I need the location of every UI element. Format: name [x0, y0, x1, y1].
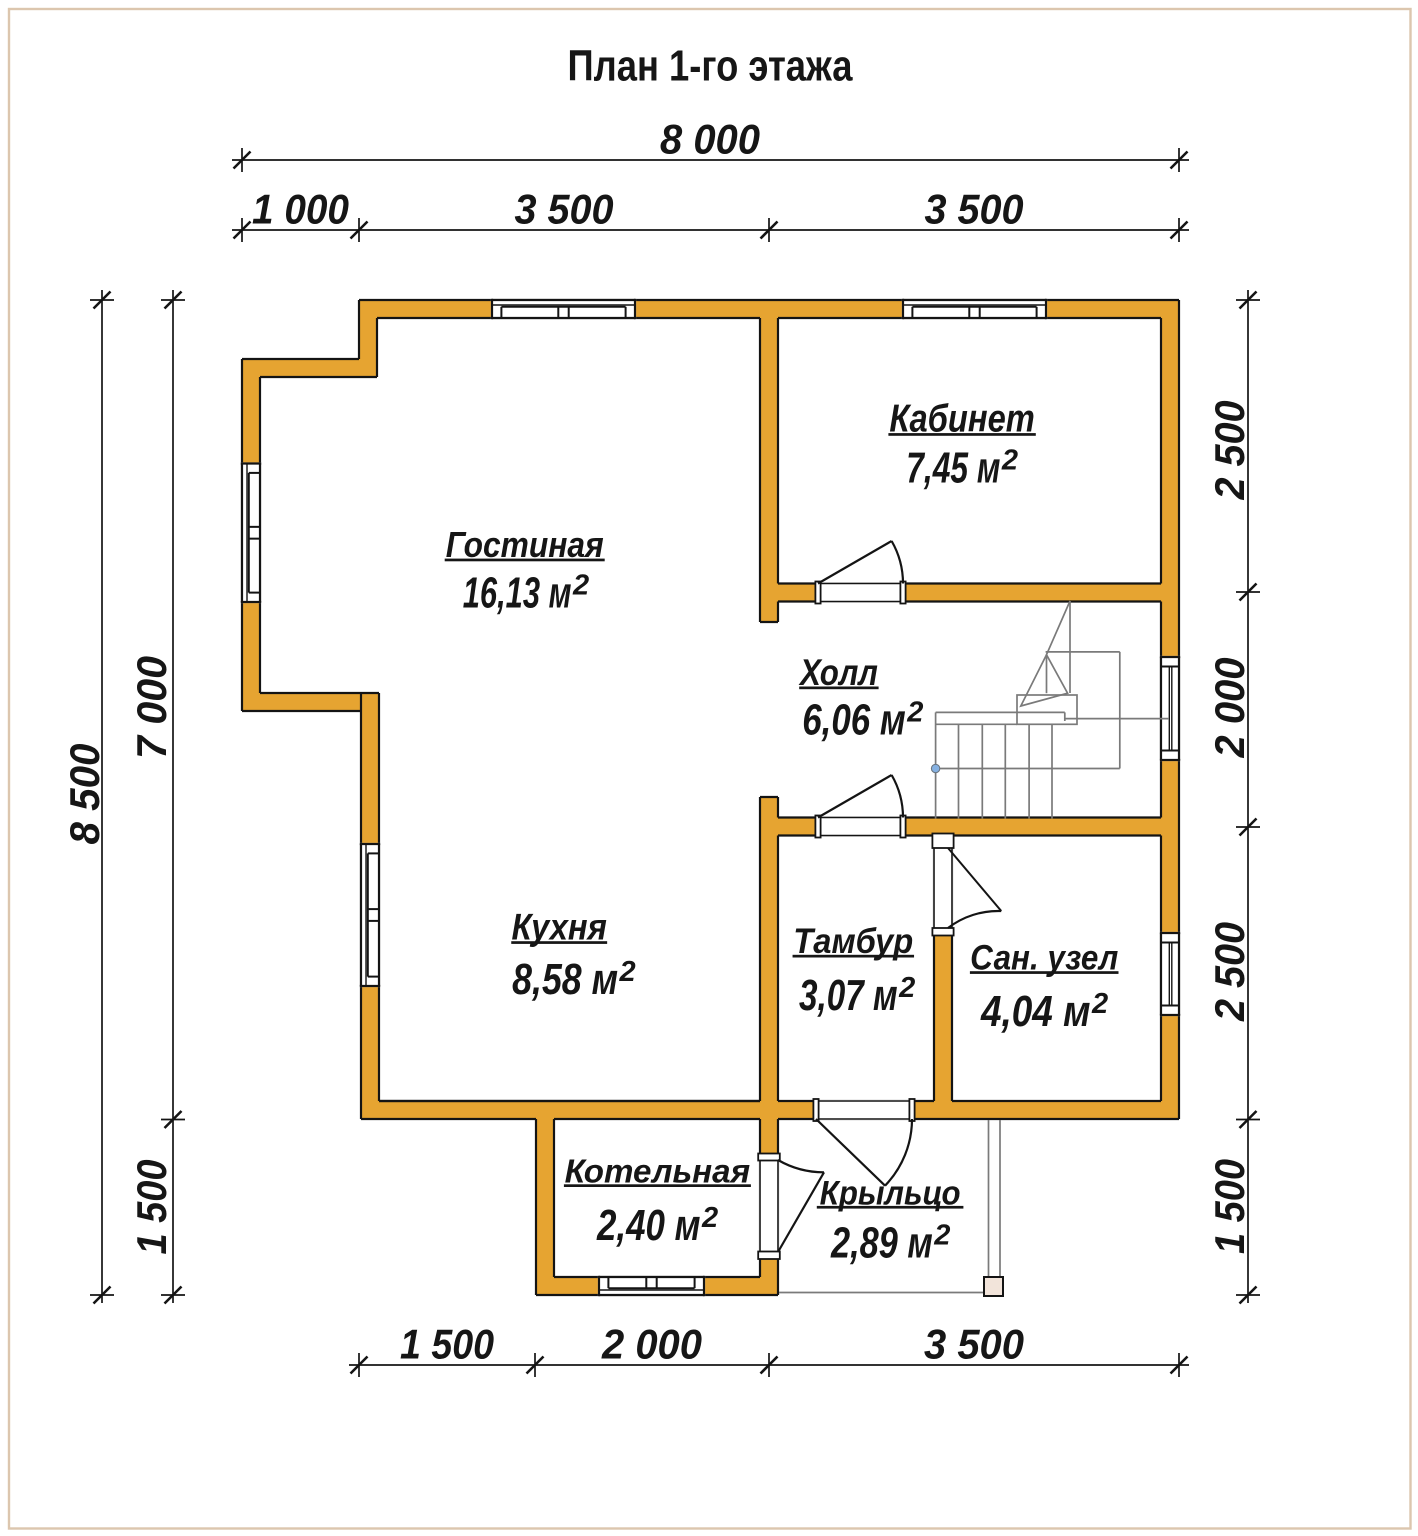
svg-text:3,07 м: 3,07 м: [799, 972, 898, 1020]
svg-text:2: 2: [898, 972, 915, 1004]
svg-text:1 500: 1 500: [400, 1321, 494, 1368]
svg-text:2: 2: [1091, 988, 1108, 1020]
svg-text:7,45 м: 7,45 м: [906, 444, 1000, 492]
svg-text:2: 2: [572, 570, 589, 602]
svg-text:2 500: 2 500: [1206, 401, 1253, 501]
svg-text:1 000: 1 000: [252, 186, 349, 233]
svg-text:Котельная: Котельная: [565, 1153, 750, 1190]
svg-text:8 000: 8 000: [660, 116, 760, 163]
svg-text:2: 2: [701, 1202, 718, 1234]
svg-text:2: 2: [1001, 444, 1018, 476]
svg-text:4,04 м: 4,04 м: [980, 988, 1090, 1036]
svg-text:2 000: 2 000: [601, 1321, 702, 1368]
svg-text:3 500: 3 500: [924, 1321, 1024, 1368]
svg-text:2: 2: [619, 956, 636, 988]
svg-text:16,13 м: 16,13 м: [463, 570, 572, 618]
svg-text:1 500: 1 500: [128, 1160, 175, 1255]
svg-text:2: 2: [906, 697, 923, 729]
svg-text:7 000: 7 000: [128, 656, 175, 759]
svg-text:3 500: 3 500: [925, 186, 1024, 233]
svg-text:8,58 м: 8,58 м: [512, 956, 618, 1004]
svg-text:2,40 м: 2,40 м: [596, 1202, 700, 1250]
svg-text:6,06 м: 6,06 м: [802, 697, 906, 745]
svg-text:2 000: 2 000: [1206, 658, 1253, 759]
svg-text:1 500: 1 500: [1206, 1159, 1253, 1254]
svg-text:2 500: 2 500: [1206, 922, 1253, 1022]
svg-text:План 1-го этажа: План 1-го этажа: [568, 42, 853, 91]
svg-text:2: 2: [933, 1220, 950, 1252]
svg-text:3 500: 3 500: [515, 186, 614, 233]
svg-text:2,89 м: 2,89 м: [830, 1220, 932, 1268]
svg-text:8 500: 8 500: [61, 744, 108, 845]
